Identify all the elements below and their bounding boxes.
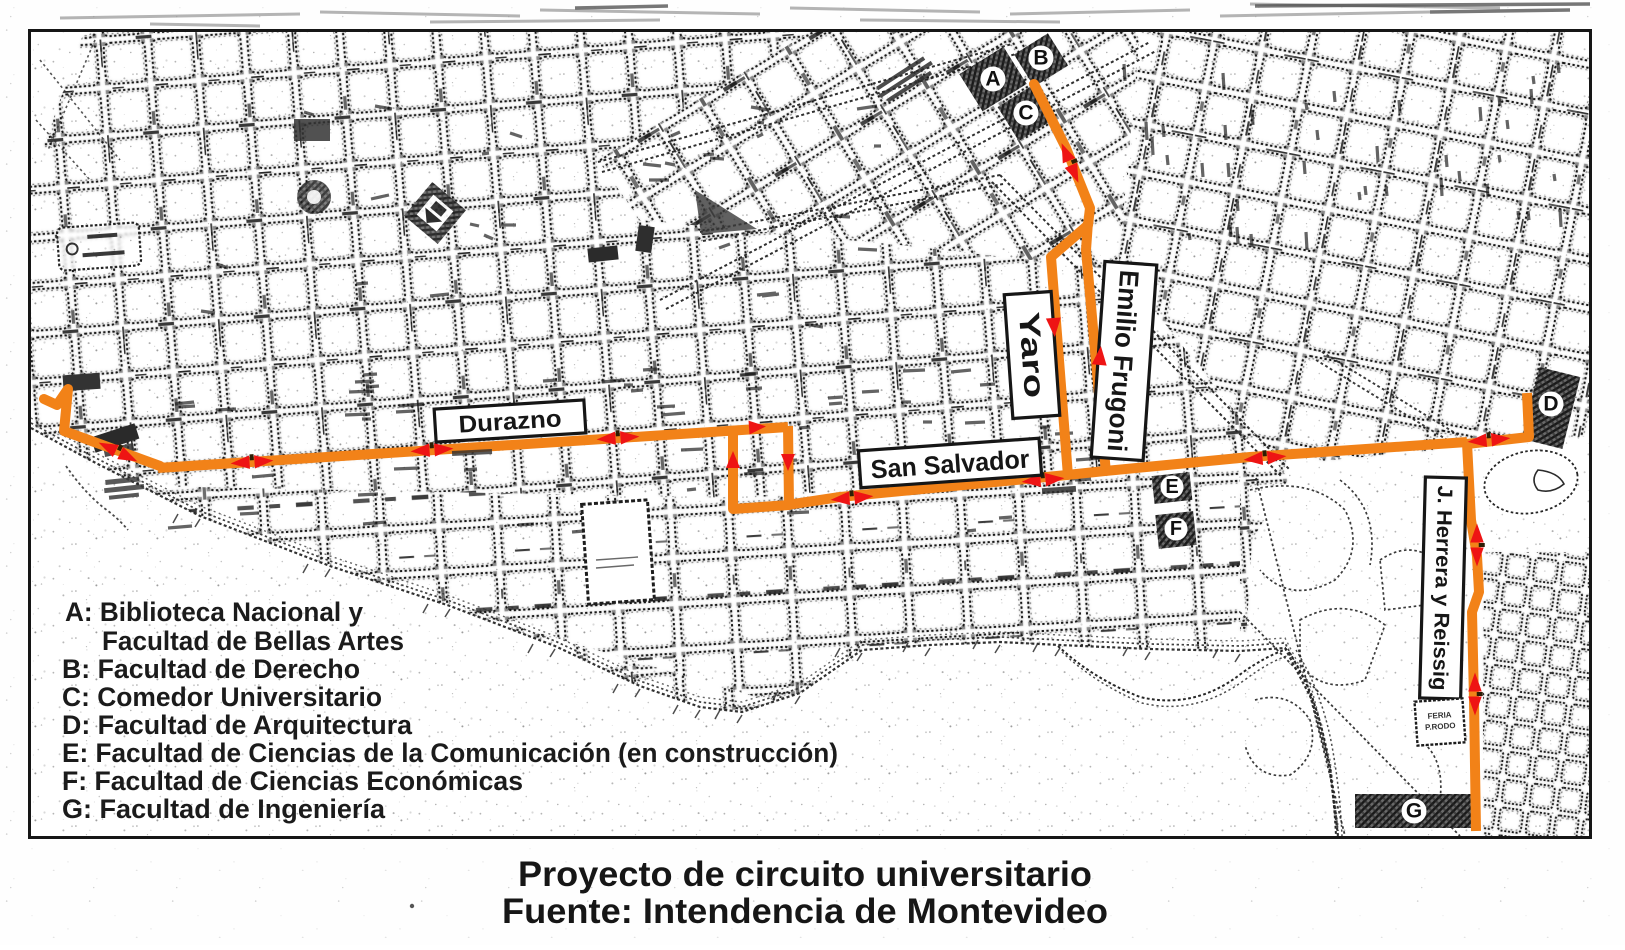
svg-text:E: E: [1165, 476, 1178, 498]
svg-text:B: Facultad de Derecho: B: Facultad de Derecho: [62, 654, 360, 684]
svg-text:E: Facultad de Ciencias de la: E: Facultad de Ciencias de la Comunicaci…: [62, 738, 838, 768]
svg-text:F: F: [1170, 518, 1182, 540]
svg-text:G: G: [1406, 800, 1422, 823]
svg-text:G: Facultad de Ingeniería: G: Facultad de Ingeniería: [62, 794, 386, 824]
svg-text:D: Facultad de Arquitectura: D: Facultad de Arquitectura: [62, 710, 413, 740]
svg-text:FERIA: FERIA: [1427, 710, 1452, 721]
svg-text:D: D: [1543, 393, 1558, 416]
svg-text:Yaro: Yaro: [1012, 311, 1050, 399]
svg-text:B: B: [1033, 47, 1048, 70]
svg-text:A: Biblioteca Nacional y: A: Biblioteca Nacional y: [65, 597, 363, 627]
svg-text:C: C: [1018, 102, 1033, 125]
svg-text:A: A: [985, 68, 1000, 91]
svg-text:F: Facultad de Ciencias Económ: F: Facultad de Ciencias Económicas: [62, 766, 523, 796]
svg-text:Fuente: Intendencia de Montevi: Fuente: Intendencia de Montevideo: [502, 892, 1108, 931]
svg-text:Proyecto de circuito universit: Proyecto de circuito universitario: [518, 855, 1092, 894]
svg-text:C: Comedor Universitario: C: Comedor Universitario: [62, 682, 382, 712]
svg-text:Facultad de Bellas Artes: Facultad de Bellas Artes: [102, 626, 404, 656]
